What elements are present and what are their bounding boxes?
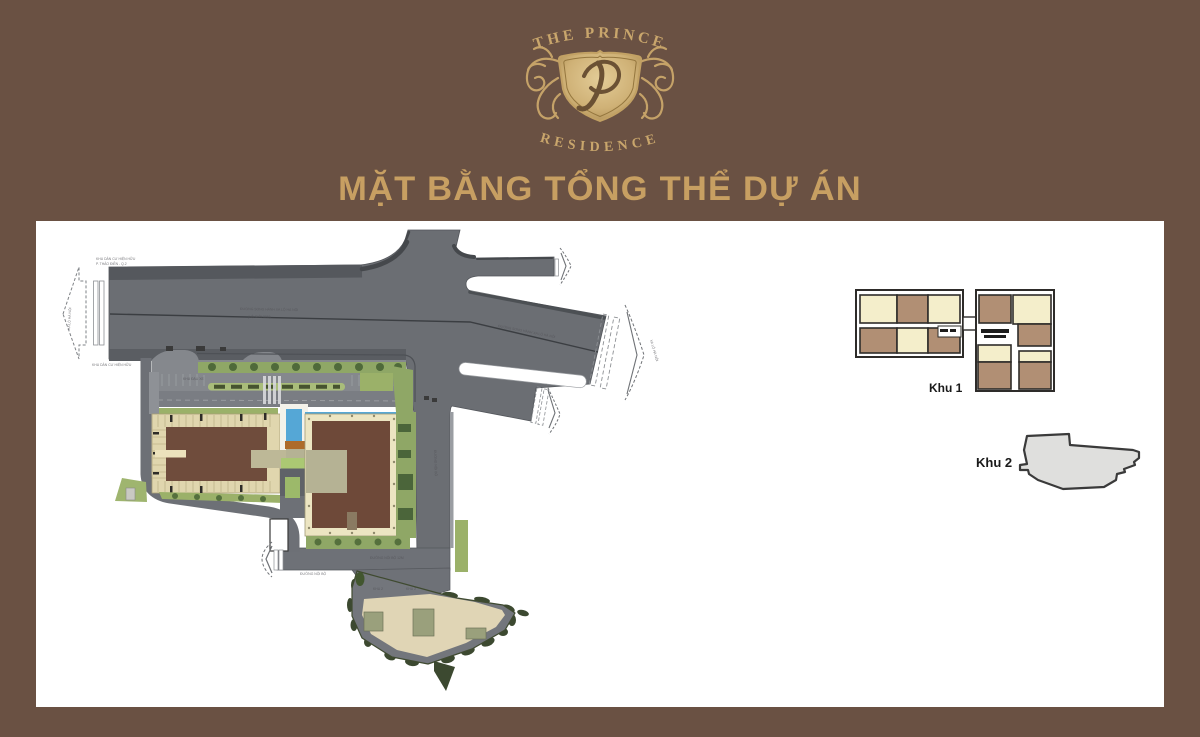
svg-text:KHU DÂN CƯ HIỆN HỮU: KHU DÂN CƯ HIỆN HỮU <box>96 256 136 261</box>
svg-text:Khu 1: Khu 1 <box>929 381 963 395</box>
svg-text:KHU DÂN CƯ HIỆN HỮU: KHU DÂN CƯ HIỆN HỮU <box>92 362 132 367</box>
svg-text:P. THẢO ĐIỀN - Q.2: P. THẢO ĐIỀN - Q.2 <box>96 261 127 266</box>
svg-text:Khu 2: Khu 2 <box>976 455 1012 470</box>
svg-text:(LỘ GIỚI 30M): (LỘ GIỚI 30M) <box>248 314 271 319</box>
svg-text:MẶT BẰNG TỔNG THỂ DỰ ÁN: MẶT BẰNG TỔNG THỂ DỰ ÁN <box>338 168 862 208</box>
svg-text:ĐƯỜNG NỘI BỘ 12M: ĐƯỜNG NỘI BỘ 12M <box>370 555 404 560</box>
svg-text:KHU ĐẬU XE: KHU ĐẬU XE <box>183 377 204 381</box>
svg-text:ĐƯỜNG SONG HÀNH XA LỘ HÀ NỘI: ĐƯỜNG SONG HÀNH XA LỘ HÀ NỘI <box>240 306 298 312</box>
svg-text:KHU 2: KHU 2 <box>373 587 383 591</box>
svg-text:ĐƯỜNG NỘI BỘ: ĐƯỜNG NỘI BỘ <box>433 450 439 477</box>
svg-text:KHU 2: KHU 2 <box>406 587 416 591</box>
svg-text:ĐƯỜNG NỘI BỘ: ĐƯỜNG NỘI BỘ <box>300 571 327 576</box>
